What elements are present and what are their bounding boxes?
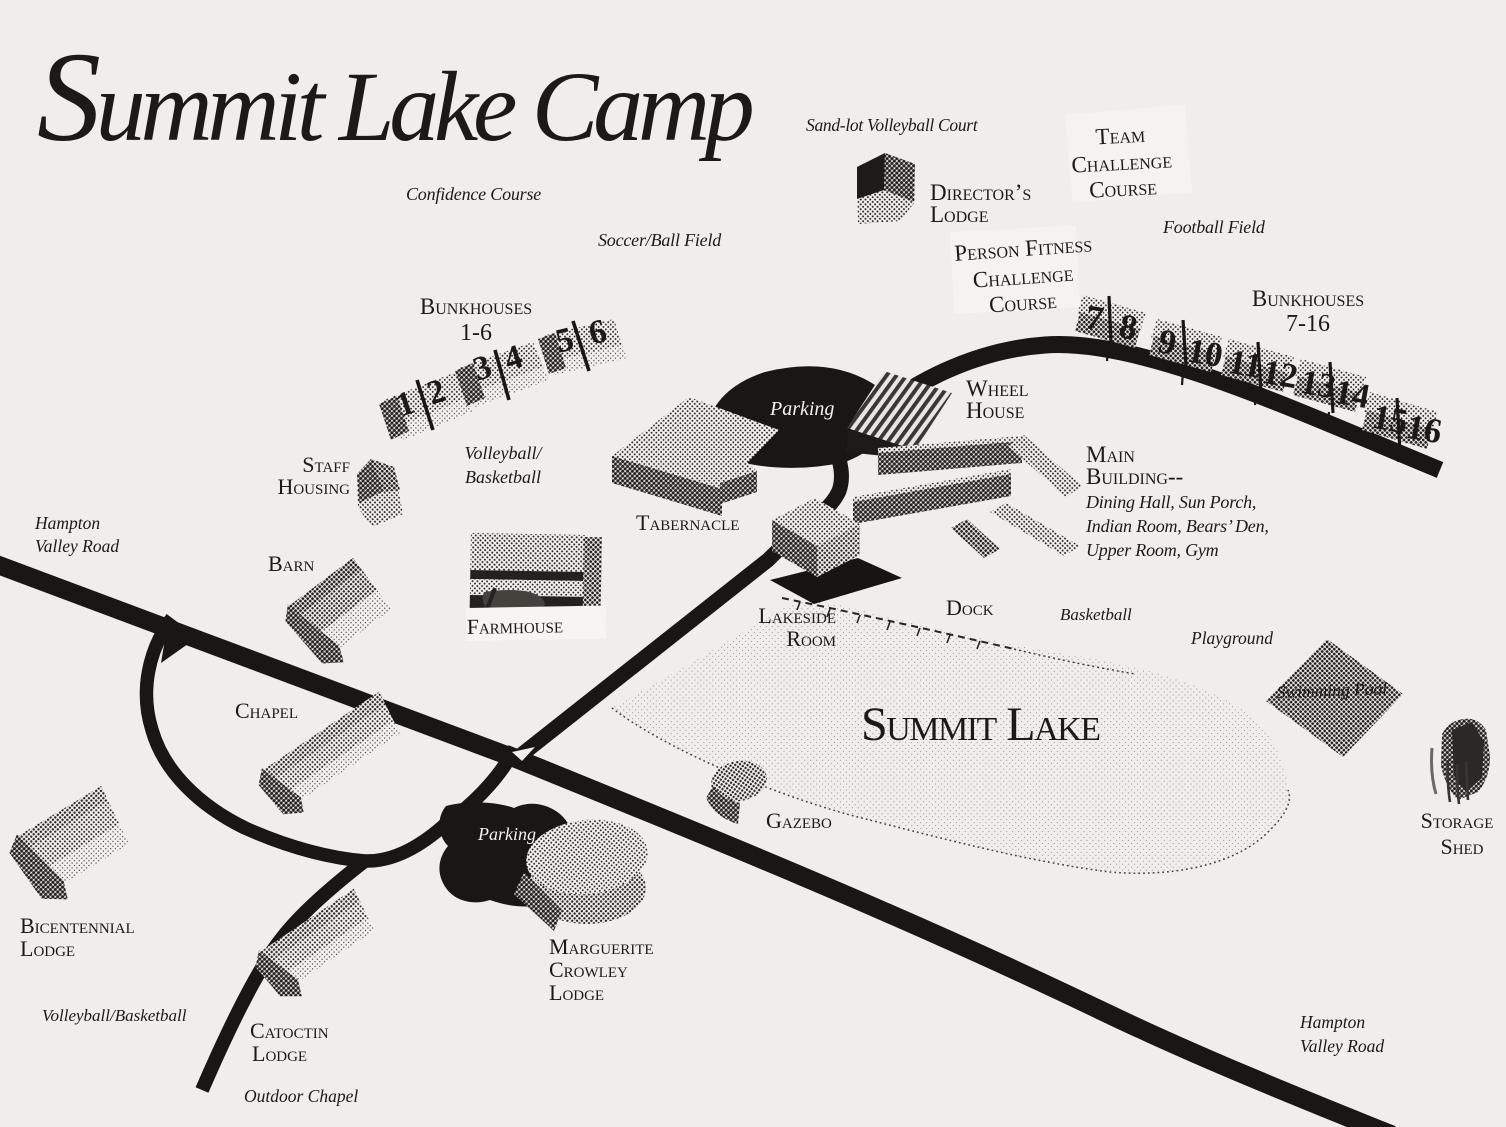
svg-text:Storage: Storage	[1421, 808, 1494, 833]
svg-text:Sand-lot Volleyball Court: Sand-lot Volleyball Court	[806, 115, 979, 135]
svg-text:Team: Team	[1095, 122, 1146, 150]
svg-text:Crowley: Crowley	[549, 957, 628, 982]
svg-text:Course: Course	[988, 288, 1057, 318]
svg-text:Playground: Playground	[1190, 628, 1273, 648]
svg-text:Basketball: Basketball	[1060, 605, 1132, 624]
svg-text:Parking: Parking	[477, 824, 536, 844]
svg-text:Course: Course	[1089, 174, 1158, 203]
svg-text:Shed: Shed	[1440, 834, 1483, 859]
svg-text:Summit Lake: Summit Lake	[861, 698, 1100, 751]
svg-text:Housing: Housing	[277, 474, 350, 499]
svg-text:Basketball: Basketball	[465, 467, 541, 487]
svg-text:Soccer/Ball Field: Soccer/Ball Field	[598, 230, 722, 250]
svg-text:Hampton: Hampton	[34, 513, 100, 533]
svg-text:Indian Room, Bears’ Den,: Indian Room, Bears’ Den,	[1085, 516, 1269, 536]
svg-text:Chapel: Chapel	[235, 698, 298, 723]
svg-text:Hampton: Hampton	[1299, 1012, 1365, 1032]
svg-text:Farmhouse: Farmhouse	[467, 613, 564, 639]
svg-text:House: House	[966, 398, 1024, 423]
svg-text:Swimming Pool: Swimming Pool	[1276, 678, 1387, 702]
svg-text:Volleyball/Basketball: Volleyball/Basketball	[42, 1006, 187, 1025]
svg-text:Lodge: Lodge	[20, 936, 75, 961]
svg-text:Marguerite: Marguerite	[549, 934, 654, 959]
svg-text:Lodge: Lodge	[252, 1041, 307, 1066]
svg-text:Parking: Parking	[769, 398, 834, 420]
svg-text:Lodge: Lodge	[930, 202, 989, 227]
svg-text:Bunkhouses: Bunkhouses	[420, 294, 532, 319]
svg-text:Bunkhouses: Bunkhouses	[1252, 286, 1364, 311]
svg-text:Challenge: Challenge	[1071, 147, 1173, 177]
svg-text:Valley Road: Valley Road	[1300, 1036, 1384, 1056]
svg-text:Dock: Dock	[946, 595, 994, 620]
svg-text:Building--: Building--	[1086, 464, 1183, 489]
svg-text:Bicentennial: Bicentennial	[20, 913, 135, 938]
svg-text:11: 11	[1226, 342, 1265, 386]
svg-text:Barn: Barn	[268, 551, 315, 576]
svg-text:Catoctin: Catoctin	[250, 1018, 329, 1043]
svg-text:Lakeside: Lakeside	[758, 603, 836, 628]
svg-text:7-16: 7-16	[1286, 311, 1330, 337]
svg-text:Lodge: Lodge	[549, 980, 604, 1005]
svg-text:Football Field: Football Field	[1162, 217, 1266, 237]
svg-text:Room: Room	[786, 626, 836, 651]
svg-text:Confidence Course: Confidence Course	[406, 184, 541, 204]
svg-text:Upper Room, Gym: Upper Room, Gym	[1086, 540, 1219, 560]
svg-text:Dining Hall, Sun Porch,: Dining Hall, Sun Porch,	[1085, 492, 1256, 512]
svg-text:16: 16	[1404, 407, 1445, 451]
svg-text:Valley Road: Valley Road	[35, 536, 119, 556]
svg-text:Gazebo: Gazebo	[766, 808, 832, 833]
svg-text:Tabernacle: Tabernacle	[636, 510, 739, 535]
svg-text:Outdoor Chapel: Outdoor Chapel	[244, 1086, 358, 1106]
svg-text:Volleyball/: Volleyball/	[465, 443, 544, 463]
svg-text:10: 10	[1185, 331, 1226, 375]
svg-text:1-6: 1-6	[460, 320, 492, 346]
